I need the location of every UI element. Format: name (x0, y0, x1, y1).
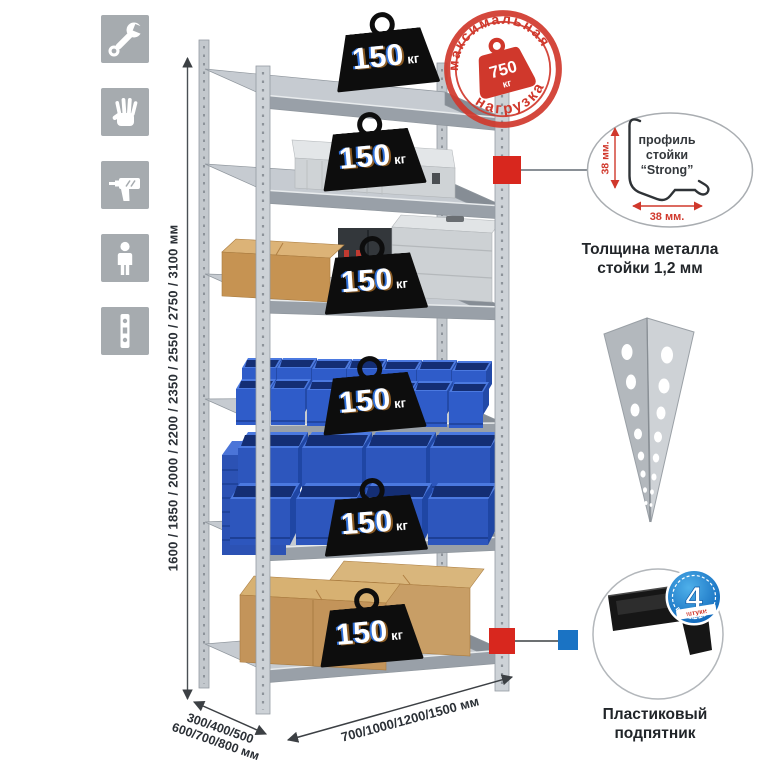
quantity-badge: 4 штуки в комплекте (666, 569, 723, 626)
gloves-icon (101, 88, 149, 136)
corner-post-image (604, 318, 694, 522)
plastic-foot-caption: Пластиковый подпятник (565, 705, 745, 744)
shelf2-weight-badge: 150кг (317, 108, 427, 195)
profile-dim-horizontal: 38 мм. (650, 211, 685, 223)
rack-post-icon (101, 307, 149, 355)
metal-thickness-caption: Толщина металла стойки 1,2 мм (560, 240, 740, 279)
height-dimension-label: 1600 / 1850 / 2000 / 2200 / 2350 / 2550 … (166, 225, 181, 572)
shelf4-weight-badge: 150кг (317, 352, 427, 439)
shelf6-weight-badge: 150кг (314, 584, 424, 671)
profile-label: профиль стойки “Strong” (632, 133, 702, 178)
connector-red-square-bottom (489, 628, 515, 654)
profile-dim-vertical: 38 мм. (600, 141, 612, 174)
shelf5-weight-badge: 150кг (319, 474, 428, 559)
shelf1-weight-badge: 150кг (329, 7, 441, 95)
shelving-infographic: { "icons": ["wrench-icon","gloves-icon",… (0, 0, 765, 765)
wrench-icon (101, 15, 149, 63)
drill-icon (101, 161, 149, 209)
width-dimension-line (288, 677, 512, 740)
connector-red-square-top (493, 156, 521, 184)
person-icon (101, 234, 149, 282)
shelf3-weight-badge: 150кг (319, 232, 428, 317)
connector-blue-square-bottom (558, 630, 578, 650)
